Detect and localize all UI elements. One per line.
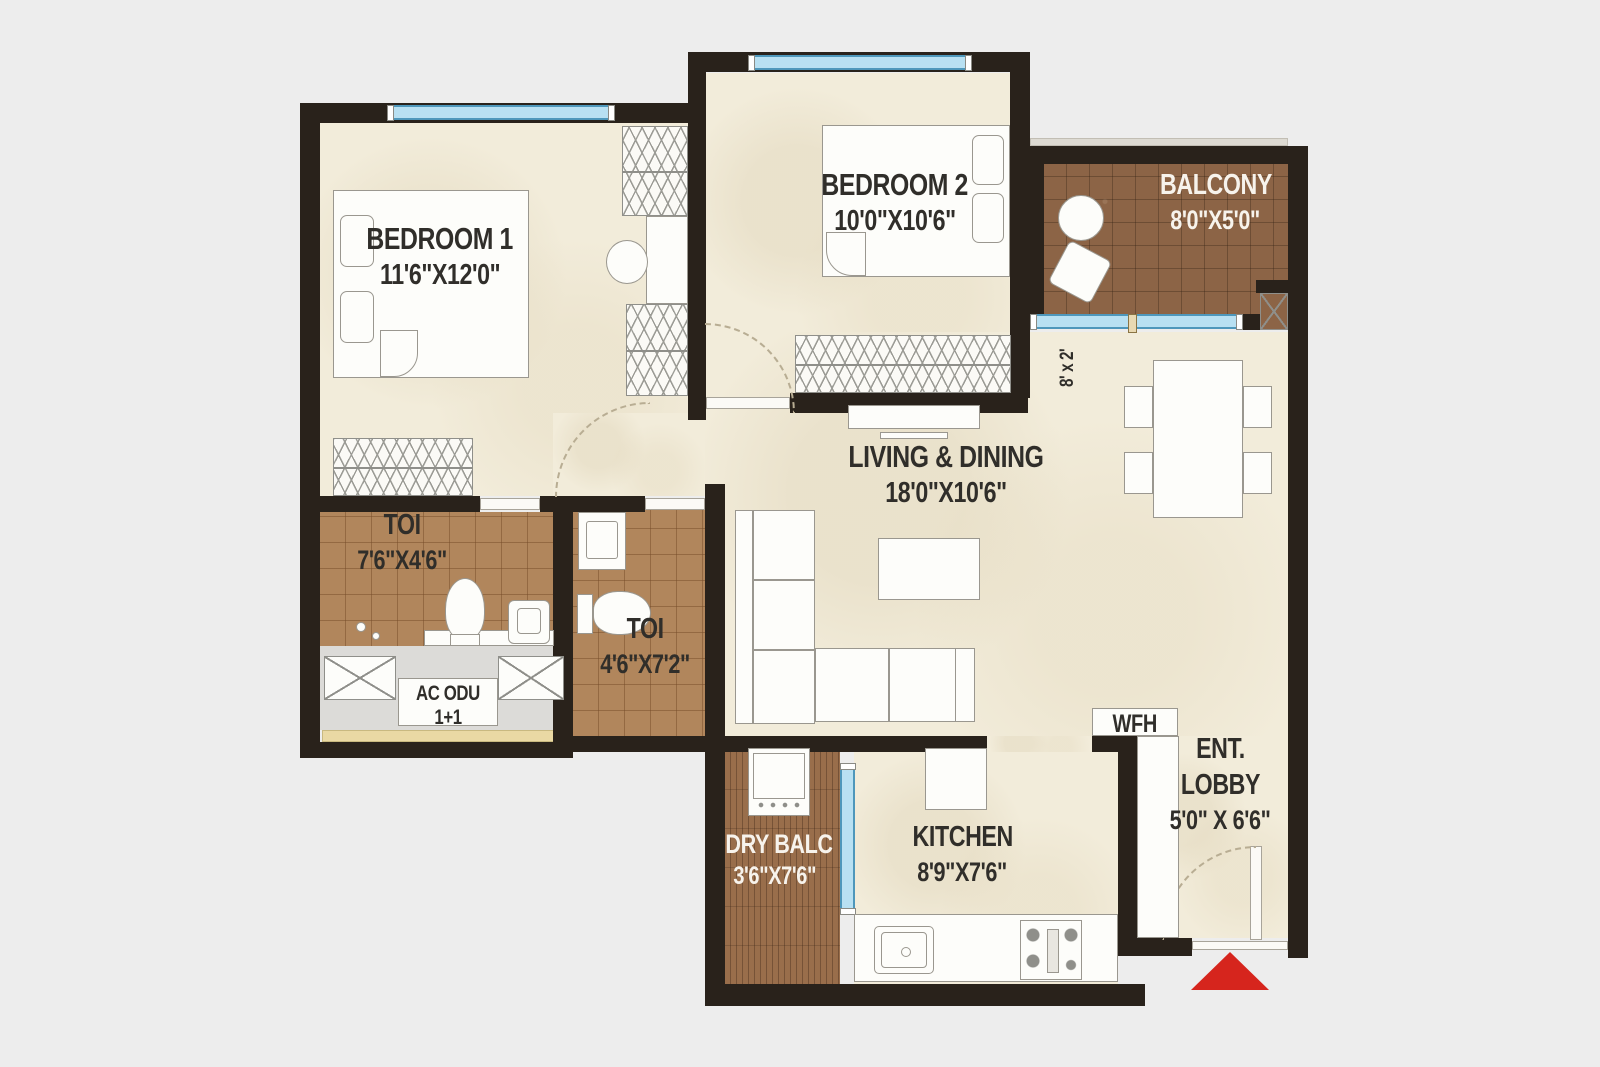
bedroom-divider-wall <box>688 52 706 420</box>
balcony-round-table <box>1058 195 1104 241</box>
toilet2-dims: 4'6"X7'2" <box>600 648 690 681</box>
dry-balcony-name: DRY BALC <box>725 828 832 861</box>
toilet1-washbasin <box>508 600 550 644</box>
bedroom2-right-wall <box>1010 52 1030 398</box>
ac-outdoor-unit-2 <box>498 656 564 700</box>
wfh-label: WFH <box>1092 709 1178 740</box>
balcony-left-wall <box>1028 146 1044 314</box>
fridge <box>925 748 987 810</box>
window-ledge-label: 8' x 2' <box>1056 328 1080 408</box>
toilet2-right-wall <box>705 484 725 736</box>
toilet2-door <box>645 498 705 510</box>
ac-odu-name: AC ODU <box>416 682 480 706</box>
living-dining-dims: 18'0"X10'6" <box>885 476 1007 512</box>
toilet2-washbasin <box>578 512 626 570</box>
sliding-window-latch <box>1128 314 1137 333</box>
balcony-name: BALCONY <box>1160 168 1272 204</box>
bedroom1-study-desk <box>646 216 688 304</box>
bedroom1-wardrobe-right-bottom <box>626 304 688 396</box>
left-outer-wall <box>300 103 320 758</box>
dining-table <box>1153 360 1243 518</box>
ac-bottom-wall <box>300 742 568 758</box>
entrance-threshold <box>1192 941 1288 950</box>
balcony-sliding-window <box>1030 314 1243 329</box>
bedroom2-dims: 10'0"X10'6" <box>834 204 956 240</box>
balcony-niche-jut <box>1256 280 1288 293</box>
bedroom1-desk-chair <box>606 240 648 284</box>
bedroom1-label: BEDROOM 1 11'6"X12'0" <box>340 220 540 294</box>
ac-odu-count: 1+1 <box>434 706 461 730</box>
bottom-outer-wall <box>705 984 1145 1006</box>
toilet1-shower-tap-1 <box>356 622 366 632</box>
bedroom2-label: BEDROOM 2 10'0"X10'6" <box>795 166 995 240</box>
dining-chair-4 <box>1243 452 1272 494</box>
kitchen-lobby-wall <box>1118 736 1138 942</box>
ac-ledge-strip <box>322 730 566 742</box>
entrance-lobby-label: ENT. LOBBY 5'0" X 6'6" <box>1150 732 1290 837</box>
bedroom1-wardrobe <box>333 438 473 496</box>
balcony-parapet-ledge <box>1030 138 1288 146</box>
dry-balcony-label: DRY BALC 3'6"X7'6" <box>712 828 838 892</box>
wfh-name: WFH <box>1113 709 1157 740</box>
dining-chair-2 <box>1124 452 1153 494</box>
kitchen-sink <box>874 926 934 974</box>
coffee-table <box>878 538 980 600</box>
toilet2-bottom-wall <box>553 736 725 752</box>
bedroom1-wardrobe-right-top <box>622 126 688 216</box>
ac-odu-label: AC ODU 1+1 <box>398 682 498 730</box>
lobby-dims: 5'0" X 6'6" <box>1170 804 1271 837</box>
balcony-label: BALCONY 8'0"X5'0" <box>1138 168 1293 237</box>
floor-plan: BEDROOM 1 11'6"X12'0" BEDROOM 2 10'0"X10… <box>0 0 1600 1067</box>
dining-chair-3 <box>1243 386 1272 428</box>
kitchen-label: KITCHEN 8'9"X7'6" <box>880 820 1045 889</box>
kitchen-dims: 8'9"X7'6" <box>918 856 1008 889</box>
toilet-divider-wall <box>553 496 573 758</box>
balcony-top-wall <box>1028 146 1308 164</box>
hob-stove <box>1020 920 1082 980</box>
toilet1-name: TOI <box>384 508 421 544</box>
toilet2-label: TOI 4'6"X7'2" <box>580 612 710 681</box>
bedroom1-pillow-2 <box>340 291 374 343</box>
washing-machine <box>748 748 810 816</box>
toilet1-wc-base <box>450 634 480 646</box>
sofa-horizontal-section <box>815 648 975 722</box>
lobby-bottom-wall <box>1118 938 1192 956</box>
duct-shaft <box>1260 293 1288 330</box>
toilet1-dims: 7'6"X4'6" <box>358 544 448 577</box>
dry-balcony-window <box>840 763 855 915</box>
dining-chair-1 <box>1124 386 1153 428</box>
living-dining-label: LIVING & DINING 18'0"X10'6" <box>796 438 1096 512</box>
bedroom2-wardrobe <box>795 335 1011 393</box>
toilet1-shower-tap-2 <box>372 632 380 640</box>
balcony-dims: 8'0"X5'0" <box>1171 204 1261 237</box>
bedroom1-dims: 11'6"X12'0" <box>380 258 500 294</box>
bedroom1-name: BEDROOM 1 <box>367 220 514 258</box>
kitchen-entry-opening <box>987 736 1092 752</box>
right-outer-wall <box>1288 146 1308 958</box>
lobby-name-1: ENT. <box>1196 732 1245 768</box>
kitchen-name: KITCHEN <box>912 820 1012 856</box>
toilet2-top-wall <box>573 496 645 512</box>
bedroom2-window <box>748 55 972 70</box>
toilet1-door <box>480 498 540 510</box>
bedroom1-window <box>387 105 615 120</box>
toilet2-name: TOI <box>626 612 663 648</box>
entry-arrow <box>1191 952 1269 990</box>
tv-unit <box>848 405 980 429</box>
ac-outdoor-unit-1 <box>324 656 396 700</box>
bedroom2-name: BEDROOM 2 <box>822 166 969 204</box>
living-dining-name: LIVING & DINING <box>848 438 1043 476</box>
toilet1-label: TOI 7'6"X4'6" <box>330 508 475 577</box>
dry-balcony-dims: 3'6"X7'6" <box>734 861 817 892</box>
lobby-name-2: LOBBY <box>1180 768 1259 804</box>
toilet1-wc <box>445 578 485 640</box>
window-ledge-size: 8' x 2' <box>1056 349 1080 387</box>
sofa-vertical-section <box>735 510 815 724</box>
